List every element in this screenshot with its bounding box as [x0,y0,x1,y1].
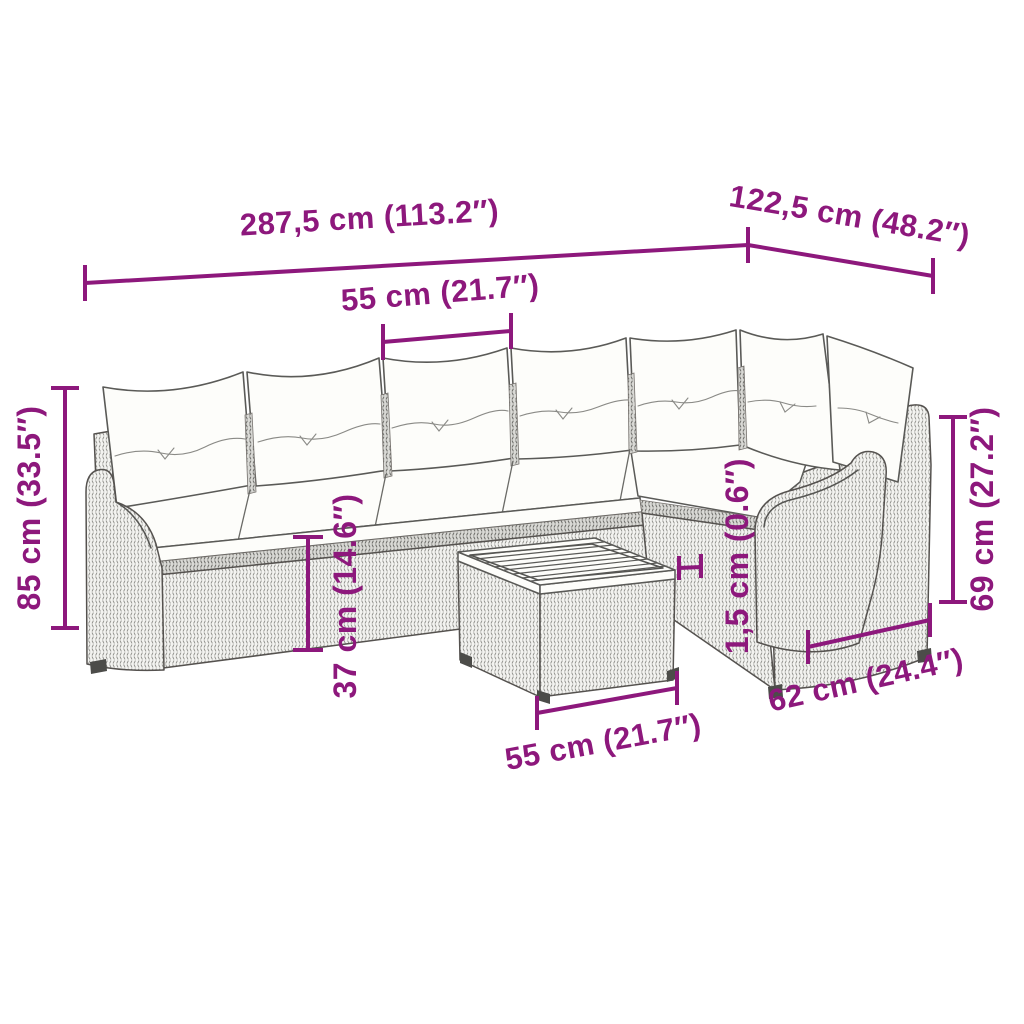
dim-seat-module-width-label: 55 cm (21.7″) [340,267,541,318]
back-cushion-4 [511,338,632,459]
dim-tabletop-thickness-label: 1,5 cm (0.6″) [719,458,755,654]
back-cushion-corner [740,330,840,470]
dim-back-height: 69 cm (27.2″) [939,406,1000,611]
dim-total-height: 85 cm (33.5″) [11,388,79,628]
dim-total-height-label: 85 cm (33.5″) [11,405,47,610]
back-cushion-3 [383,348,514,471]
dim-seat-height-label: 37 cm (14.6″) [327,493,363,698]
dim-seat-module-width: 55 cm (21.7″) [340,267,541,360]
table-right-panel [540,579,675,697]
back-cushion-5 [630,330,740,451]
side-table-line-art [458,538,679,704]
back-cushion-2 [247,358,388,486]
dim-table-width-label: 55 cm (21.7″) [502,706,704,777]
dim-total-length-label: 287,5 cm (113.2″) [239,193,500,243]
dimension-diagram: 287,5 cm (113.2″) 122,5 cm (48.2″) 55 cm… [0,0,1024,1024]
diagram-canvas: 287,5 cm (113.2″) 122,5 cm (48.2″) 55 cm… [0,0,1024,1024]
dim-back-height-label: 69 cm (27.2″) [964,406,1000,611]
dim-total-depth: 122,5 cm (48.2″) [727,178,973,294]
back-cushion-1 [103,372,252,508]
dim-total-depth-label: 122,5 cm (48.2″) [727,178,973,253]
